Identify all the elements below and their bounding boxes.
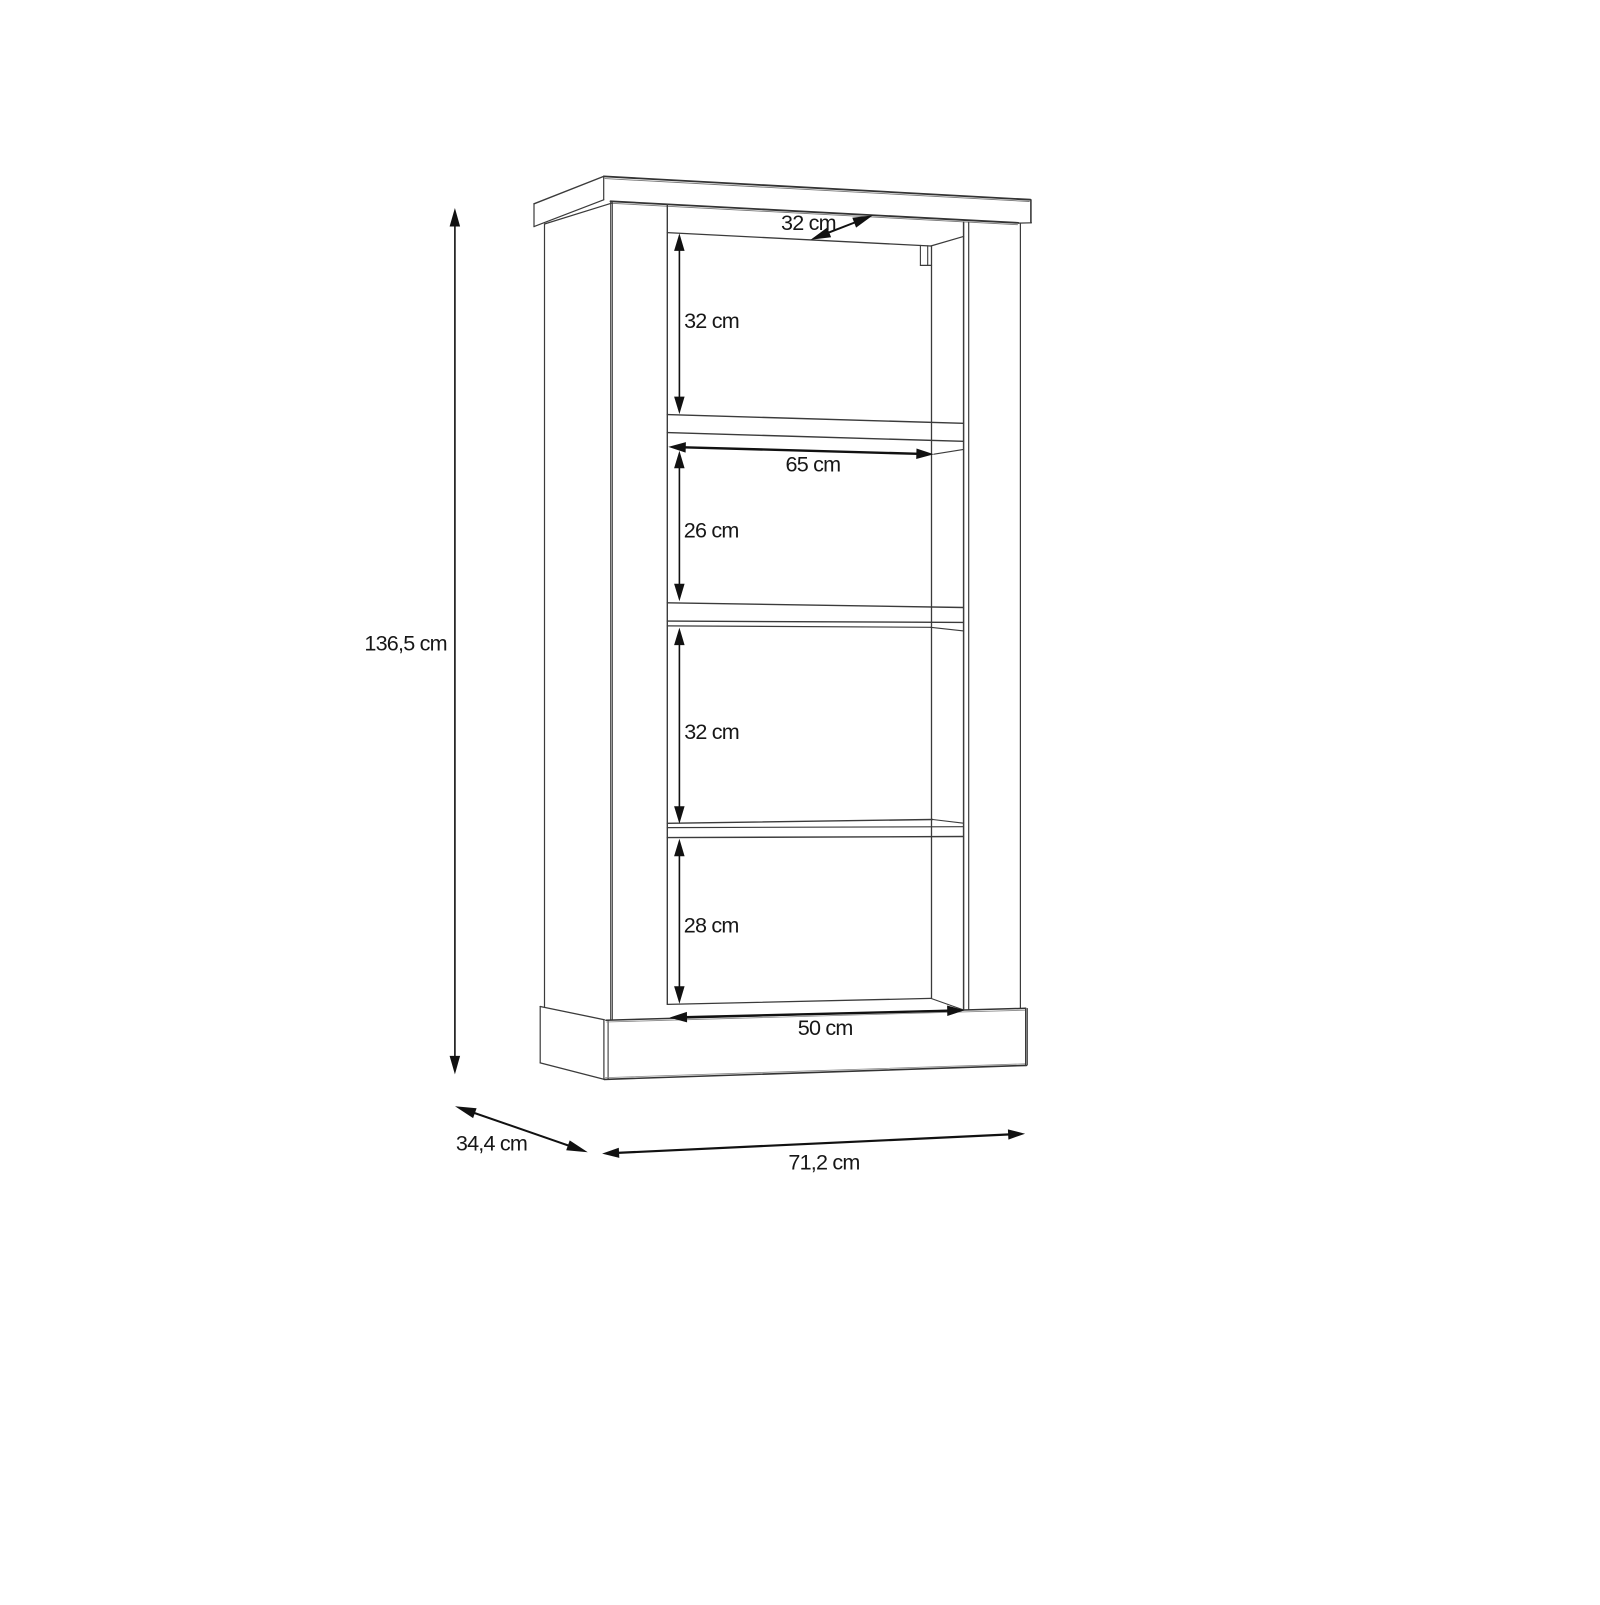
- svg-text:136,5 cm: 136,5 cm: [364, 631, 446, 656]
- svg-text:32 cm: 32 cm: [684, 719, 739, 744]
- svg-text:28 cm: 28 cm: [684, 912, 739, 937]
- svg-text:32 cm: 32 cm: [684, 308, 739, 333]
- svg-text:65 cm: 65 cm: [786, 452, 841, 477]
- svg-text:50 cm: 50 cm: [798, 1015, 853, 1040]
- svg-text:26 cm: 26 cm: [684, 517, 739, 542]
- svg-text:32 cm: 32 cm: [781, 210, 836, 235]
- svg-text:71,2 cm: 71,2 cm: [788, 1149, 859, 1174]
- svg-text:34,4 cm: 34,4 cm: [456, 1131, 527, 1156]
